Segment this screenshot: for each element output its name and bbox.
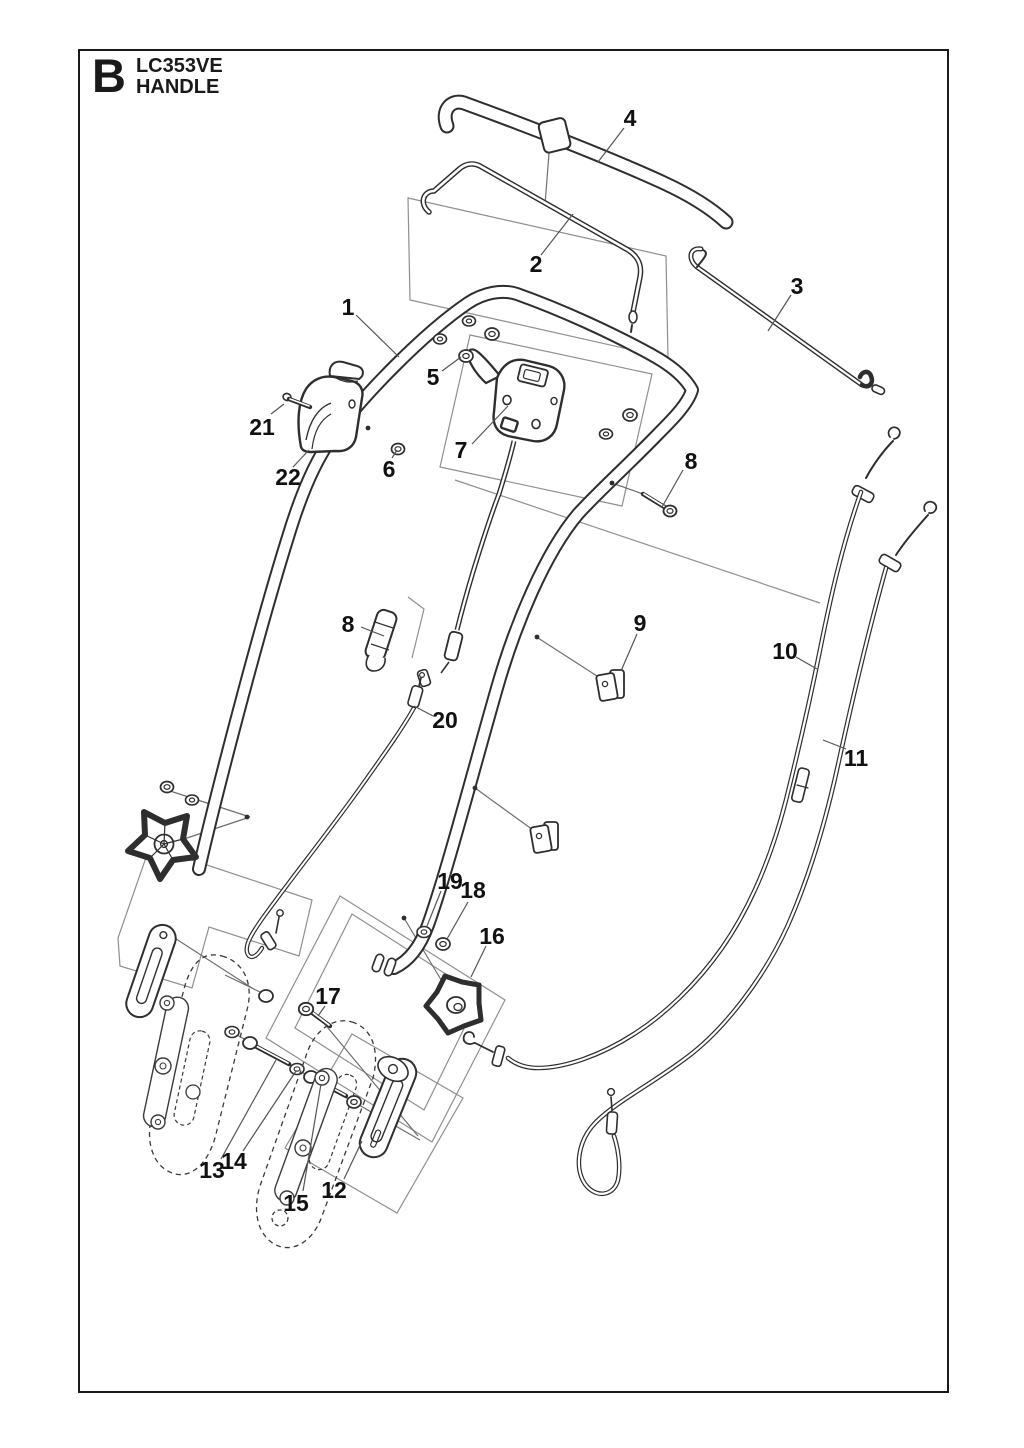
callout-leader-13	[221, 1060, 276, 1159]
callout-label-7: 7	[455, 437, 468, 463]
callout-leader-18	[447, 902, 468, 939]
callout-leader-20	[414, 706, 433, 716]
callout-label-16: 16	[479, 923, 505, 949]
callout-label-12: 12	[321, 1177, 347, 1203]
ipl-page: B LC353VE HANDLE	[0, 0, 1024, 1448]
callout-leader-1	[356, 315, 399, 357]
callout-leader-10	[796, 657, 817, 669]
star-knob	[128, 812, 196, 879]
callout-leader-5	[442, 357, 461, 371]
callout-label-6: 6	[383, 456, 396, 482]
hook-rod	[691, 249, 886, 396]
callout-label-15: 15	[283, 1190, 309, 1216]
callout-label-20: 20	[432, 707, 458, 733]
cable-10	[464, 427, 900, 1068]
upper-handle-bar	[445, 102, 726, 222]
callout-leader-9	[621, 634, 637, 671]
cable-clamp-9	[596, 670, 624, 701]
callout-label-18: 18	[460, 877, 486, 903]
callout-leader-16	[471, 946, 486, 977]
callout-label-22: 22	[275, 464, 301, 490]
callout-label-8: 8	[685, 448, 698, 474]
callout-label-1: 1	[342, 294, 355, 320]
callout-label-21: 21	[249, 414, 275, 440]
cable-clamp-lower	[530, 822, 558, 853]
callout-label-14: 14	[221, 1148, 247, 1174]
callout-label-2: 2	[530, 251, 543, 277]
callout-leader-14	[243, 1071, 296, 1151]
throttle-control-assembly	[417, 350, 565, 688]
callout-label-10: 10	[772, 638, 798, 664]
callout-label-19: 19	[437, 868, 463, 894]
parts-diagram: 423152122678891011201918161713141512	[0, 0, 1024, 1448]
cable-11	[579, 502, 936, 1194]
callout-leader-8	[662, 470, 683, 507]
callout-label-5: 5	[427, 364, 440, 390]
callout-label-11: 11	[844, 745, 869, 771]
callout-label-8: 8	[342, 611, 355, 637]
callout-label-9: 9	[634, 610, 647, 636]
callout-label-3: 3	[791, 273, 804, 299]
callout-layer: 423152122678891011201918161713141512	[199, 105, 868, 1216]
callout-label-17: 17	[315, 983, 341, 1009]
cable-20	[247, 673, 425, 957]
callout-leader-12	[344, 1141, 362, 1179]
callout-label-4: 4	[624, 105, 637, 131]
callout-leader-21	[271, 404, 284, 414]
bolt-8	[643, 494, 677, 517]
assembly-lines	[167, 153, 643, 1140]
sleeve-8	[364, 608, 398, 671]
knob-16	[426, 976, 481, 1033]
